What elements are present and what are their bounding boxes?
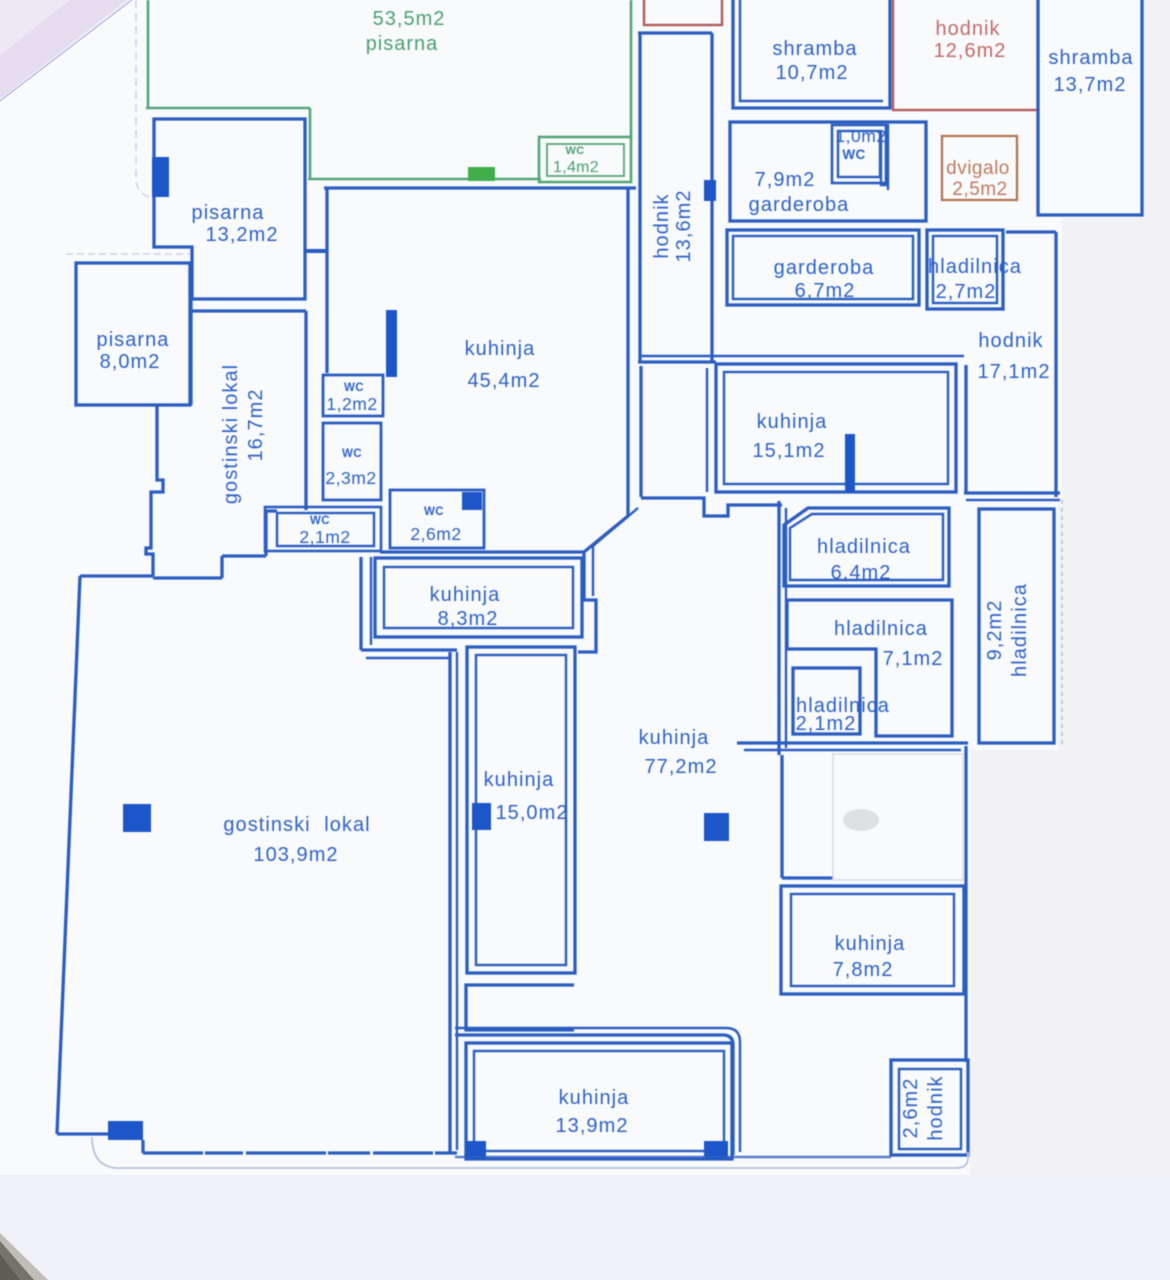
svg-text:1,4m2: 1,4m2 [553, 159, 599, 176]
svg-text:13,9m2: 13,9m2 [555, 1115, 628, 1137]
svg-text:hodnik: hodnik [925, 1075, 947, 1140]
svg-text:8,0m2: 8,0m2 [100, 351, 161, 373]
svg-text:6,7m2: 6,7m2 [795, 280, 856, 302]
svg-text:13,6m2: 13,6m2 [673, 189, 695, 262]
svg-text:13,2m2: 13,2m2 [205, 224, 278, 246]
svg-text:hladilnica: hladilnica [817, 536, 911, 558]
svg-text:WC: WC [310, 515, 330, 527]
svg-text:1,0m2: 1,0m2 [835, 126, 886, 146]
svg-text:2,5m2: 2,5m2 [952, 179, 1007, 200]
svg-text:17,1m2: 17,1m2 [977, 361, 1050, 383]
svg-text:dvigalo: dvigalo [946, 158, 1010, 179]
svg-text:1,2m2: 1,2m2 [326, 394, 377, 414]
svg-text:15,0m2: 15,0m2 [495, 802, 568, 824]
svg-text:WC: WC [424, 506, 444, 518]
svg-text:kuhinja: kuhinja [430, 584, 501, 606]
svg-text:kuhinja: kuhinja [559, 1087, 630, 1109]
svg-text:10,7m2: 10,7m2 [775, 62, 848, 84]
svg-text:77,2m2: 77,2m2 [644, 756, 717, 778]
svg-text:gostinski lokal: gostinski lokal [223, 814, 370, 836]
svg-text:WC: WC [342, 448, 362, 460]
svg-text:WC: WC [344, 382, 364, 394]
svg-text:15,1m2: 15,1m2 [752, 440, 825, 462]
svg-text:7,9m2: 7,9m2 [755, 169, 816, 191]
svg-text:12,6m2: 12,6m2 [934, 40, 1007, 62]
svg-text:2,6m2: 2,6m2 [900, 1078, 922, 1139]
svg-text:WC: WC [842, 147, 865, 162]
svg-text:9,2m2: 9,2m2 [984, 600, 1006, 661]
svg-text:shramba: shramba [1048, 47, 1133, 69]
svg-text:kuhinja: kuhinja [639, 727, 710, 749]
svg-text:7,1m2: 7,1m2 [883, 648, 944, 670]
svg-text:shramba: shramba [772, 38, 857, 60]
svg-text:gostinski lokal: gostinski lokal [220, 364, 242, 504]
svg-text:45,4m2: 45,4m2 [467, 370, 540, 392]
svg-text:53,5m2: 53,5m2 [373, 8, 446, 30]
svg-text:103,9m2: 103,9m2 [253, 844, 338, 866]
svg-text:2,6m2: 2,6m2 [410, 524, 461, 544]
svg-text:2,3m2: 2,3m2 [325, 468, 376, 488]
svg-text:pisarna: pisarna [192, 202, 265, 224]
svg-text:kuhinja: kuhinja [835, 933, 906, 955]
svg-text:6,4m2: 6,4m2 [831, 562, 892, 584]
svg-text:2,1m2: 2,1m2 [796, 713, 857, 735]
svg-text:7,8m2: 7,8m2 [833, 959, 894, 981]
svg-text:pisarna: pisarna [366, 33, 439, 55]
svg-text:hladilnica: hladilnica [928, 256, 1022, 278]
svg-text:hodnik: hodnik [651, 193, 673, 258]
svg-text:garderoba: garderoba [749, 194, 850, 216]
svg-text:hladilnica: hladilnica [834, 618, 928, 640]
svg-text:WC: WC [566, 145, 585, 157]
svg-text:hodnik: hodnik [936, 18, 1001, 40]
svg-text:16,7m2: 16,7m2 [245, 388, 267, 461]
svg-text:8,3m2: 8,3m2 [438, 608, 499, 630]
svg-text:kuhinja: kuhinja [484, 769, 555, 791]
svg-text:hladilnica: hladilnica [1009, 583, 1031, 677]
svg-text:kuhinja: kuhinja [465, 338, 536, 360]
svg-text:pisarna: pisarna [97, 329, 170, 351]
svg-text:2,1m2: 2,1m2 [299, 527, 350, 547]
svg-text:2,7m2: 2,7m2 [936, 281, 997, 303]
svg-text:hodnik: hodnik [978, 330, 1043, 352]
svg-text:garderoba: garderoba [774, 257, 875, 279]
svg-text:kuhinja: kuhinja [757, 411, 828, 433]
svg-text:13,7m2: 13,7m2 [1053, 74, 1126, 96]
